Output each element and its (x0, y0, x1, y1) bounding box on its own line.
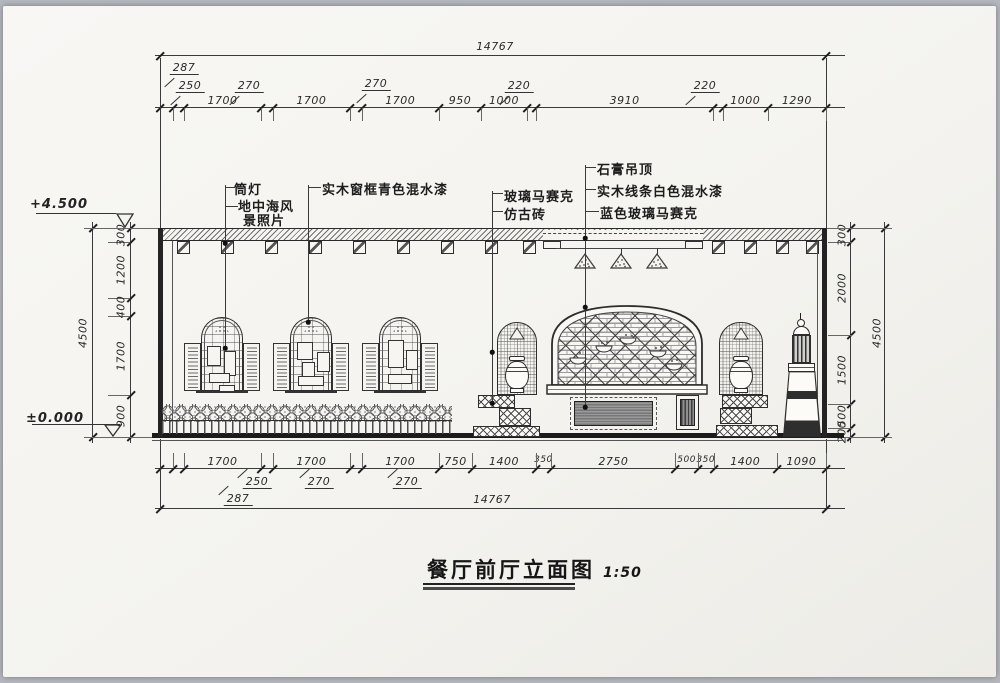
leader-dot (223, 241, 228, 246)
urn-body (505, 361, 529, 389)
lattice-pedestal (722, 395, 768, 408)
ext-stub (826, 453, 827, 467)
leader-line (493, 193, 503, 194)
dim-label: 1700 (385, 94, 415, 107)
niche-ornament (509, 327, 525, 346)
dim-label: 1400 (730, 455, 760, 468)
ceiling-beam (441, 241, 454, 254)
window-shutter-right (332, 343, 349, 391)
ext-stub (362, 453, 363, 467)
leader-dot (306, 320, 311, 325)
offset-leader (685, 96, 695, 105)
ceiling-beam (309, 241, 322, 254)
overall-top-label: 14767 (476, 40, 514, 53)
niche-ornament (733, 327, 749, 346)
label-glass-mosaic: 玻璃马赛克 (504, 186, 574, 205)
floor-thin-line (152, 440, 844, 441)
ext-stub (536, 108, 537, 121)
window-shutter-right (421, 343, 438, 391)
ext-stub (714, 453, 715, 467)
dim-label: 750 (444, 455, 467, 468)
ext-stub (173, 108, 174, 121)
dim-label: 1090 (786, 455, 816, 468)
leader-line (309, 187, 321, 188)
dim-label: 220 (505, 79, 534, 93)
leader-line (225, 185, 226, 348)
lattice-pedestal (499, 408, 531, 426)
ceiling-beam (776, 241, 789, 254)
level-mark-bottom: ±0.000 (26, 411, 84, 426)
window-shutter-left (184, 343, 201, 391)
ext-stub (184, 108, 185, 121)
leader-line (492, 191, 493, 403)
leader-line (493, 211, 503, 212)
central-trellis-window (546, 296, 708, 398)
dim-label: 250 (176, 79, 205, 93)
spray-light-icon (610, 253, 632, 275)
ext-line (826, 228, 892, 229)
ceiling-beam (744, 241, 757, 254)
leader-dot (223, 346, 228, 351)
level-flag-top-tri (116, 213, 134, 234)
overall-col-label: 4500 (77, 318, 90, 348)
ext-stub (350, 108, 351, 121)
ceiling-dashed-centerline (543, 233, 703, 234)
ext-stub (184, 453, 185, 467)
ext-stub (826, 108, 827, 121)
dim-label: 1290 (782, 94, 812, 107)
dim-label: 1000 (730, 94, 760, 107)
window-shutter-right (243, 343, 260, 391)
dim-label: 1200 (115, 255, 128, 285)
dim-label: 270 (362, 77, 391, 91)
lighthouse-gallery (788, 363, 815, 372)
lattice-pedestal (716, 425, 778, 437)
ext-stub (777, 453, 778, 467)
overall-bottom-label: 14767 (473, 493, 511, 506)
leader-line (226, 206, 238, 207)
photo-frame (207, 346, 221, 366)
leader-line (586, 211, 599, 212)
photo-frame (209, 373, 230, 383)
dim-label: 1700 (296, 94, 326, 107)
picket-fence (162, 420, 452, 434)
urn-base (510, 388, 524, 393)
ceiling-beam (397, 241, 410, 254)
overall-bottom-line (155, 508, 845, 509)
overall-top-line (155, 55, 845, 56)
label-window-frame-paint: 实木窗框青色混水漆 (322, 179, 448, 198)
photo-frame (297, 342, 313, 360)
overall-col-line (92, 222, 93, 443)
ext-stub (828, 335, 852, 336)
ext-line (160, 58, 161, 228)
lighthouse-dome (793, 326, 810, 335)
photo-frame (298, 376, 324, 386)
level-flag-bottom-tri (104, 424, 122, 444)
ext-stub (273, 453, 274, 467)
leader-dot (583, 305, 588, 310)
scanned-elevation-drawing: 2872501700270170027017009501000220391022… (0, 0, 1000, 683)
label-photo-2: 景照片 (243, 210, 285, 229)
offset-leader (164, 78, 174, 87)
ext-stub (108, 395, 130, 396)
title-text: 餐厅前厅立面图 (427, 559, 595, 582)
ext-stub (723, 108, 724, 121)
dim-label: 1400 (489, 455, 519, 468)
ceiling-beam (265, 241, 278, 254)
ceiling-hatch-band (160, 228, 826, 241)
dim-label: 3910 (610, 94, 640, 107)
ext-stub (362, 108, 363, 121)
lighthouse-lantern (792, 335, 811, 363)
overall-col-line (884, 222, 885, 443)
dim-label: 270 (393, 475, 422, 489)
title-underline-2 (423, 587, 575, 590)
ext-stub (439, 108, 440, 121)
leader-dot (583, 236, 588, 241)
leader-line (308, 185, 309, 322)
dim-label: 220 (691, 79, 720, 93)
dim-label: 250 (243, 475, 272, 489)
ext-stub (536, 453, 537, 467)
ceiling-beam (523, 241, 536, 254)
dim-label: 350 (696, 455, 715, 465)
label-gypsum-ceiling: 石膏吊顶 (597, 159, 653, 178)
ext-stub (439, 453, 440, 467)
ext-stub (261, 108, 262, 121)
dim-chain-line (130, 222, 131, 443)
ext-line (160, 439, 161, 509)
lattice-pedestal (478, 395, 515, 408)
lattice-pedestal (473, 426, 540, 437)
photo-frame (388, 340, 404, 368)
photo-frame (317, 352, 330, 372)
dim-label: 2750 (598, 455, 628, 468)
dim-label: 1700 (296, 455, 326, 468)
ext-stub (173, 453, 174, 467)
lighthouse-shaft (784, 372, 819, 436)
photo-frame (388, 374, 412, 384)
dim-label: 1500 (836, 355, 849, 385)
urn-body (729, 361, 753, 389)
right-wall (822, 228, 827, 437)
leader-dot (490, 350, 495, 355)
dim-label: 500 (677, 455, 696, 465)
ext-stub (261, 453, 262, 467)
ext-stub (551, 453, 552, 467)
leader-line (585, 165, 586, 407)
dim-label: 1700 (208, 455, 238, 468)
dim-label: 2000 (836, 273, 849, 303)
spray-light-icon (646, 253, 668, 275)
ext-line (84, 437, 160, 438)
overall-col-label: 4500 (871, 318, 884, 348)
window-sill (285, 391, 337, 393)
ext-stub (675, 453, 676, 467)
dim-label: 1700 (385, 455, 415, 468)
level-mark-top: +4.500 (30, 197, 88, 212)
leader-dot (490, 401, 495, 406)
dim-label: 287 (170, 61, 199, 75)
ext-line (826, 58, 827, 228)
title-underline-1 (423, 583, 575, 585)
leader-line (586, 167, 596, 168)
label-blue-glass-mosaic: 蓝色玻璃马赛克 (600, 203, 698, 222)
side-panel-grille (680, 399, 695, 426)
ceiling-beam (353, 241, 366, 254)
window-shutter-left (273, 343, 290, 391)
ext-stub (527, 108, 528, 121)
window-sill (196, 391, 248, 393)
lattice-pedestal (720, 408, 752, 424)
ceiling-beam (177, 241, 190, 254)
ext-stub (481, 108, 482, 121)
drawing-title: 餐厅前厅立面图1:50 (427, 554, 642, 584)
suspended-ceiling (543, 230, 703, 241)
window-sill (374, 391, 426, 393)
label-antique-brick: 仿古砖 (504, 204, 546, 223)
ext-stub (273, 108, 274, 121)
ext-stub (350, 453, 351, 467)
dim-label: 270 (305, 475, 334, 489)
dim-label: 350 (534, 455, 553, 465)
dim-label: 270 (235, 79, 264, 93)
ext-stub (768, 108, 769, 121)
ext-stub (698, 453, 699, 467)
ext-stub (713, 108, 714, 121)
dim-label: 287 (224, 492, 253, 506)
dim-label: 1700 (115, 341, 128, 371)
leader-line (586, 189, 596, 190)
window-shutter-left (362, 343, 379, 391)
ceiling-beam (712, 241, 725, 254)
dim-label: 400 (115, 296, 128, 319)
ext-line (826, 439, 827, 509)
photo-frame (406, 350, 418, 370)
title-scale: 1:50 (603, 565, 642, 581)
ext-stub (472, 453, 473, 467)
urn-base (734, 388, 748, 393)
label-wood-trim-paint: 实木线条白色混水漆 (597, 181, 723, 200)
offset-leader (356, 94, 366, 103)
dim-label: 950 (449, 94, 472, 107)
suspended-ceiling-line (556, 248, 690, 249)
leader-dot (583, 405, 588, 410)
